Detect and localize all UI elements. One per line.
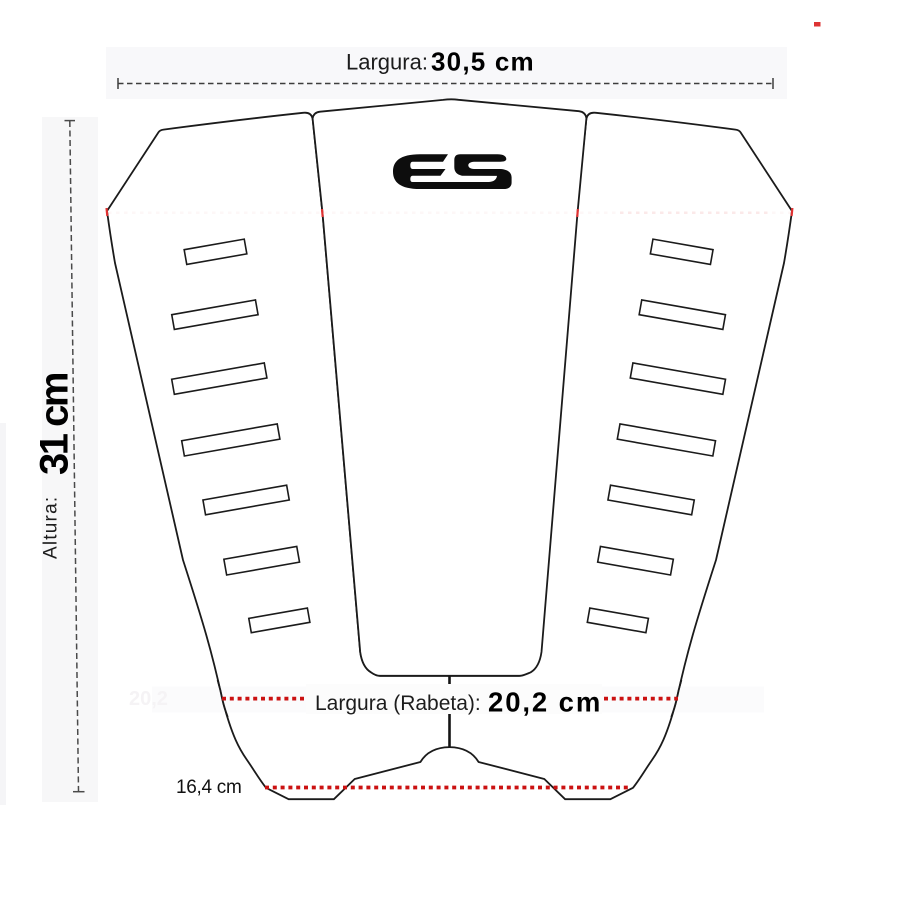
svg-text:20,2 cm: 20,2 cm <box>488 687 602 718</box>
svg-text:16,4 cm: 16,4 cm <box>176 777 242 798</box>
svg-text:Largura:: Largura: <box>346 50 428 75</box>
svg-text:30,5 cm: 30,5 cm <box>431 47 535 77</box>
svg-text:Largura (Rabeta):: Largura (Rabeta): <box>315 692 481 715</box>
svg-text:20,2: 20,2 <box>129 688 168 710</box>
svg-text:Altura:: Altura: <box>41 496 62 559</box>
svg-text:31 cm: 31 cm <box>33 373 77 475</box>
